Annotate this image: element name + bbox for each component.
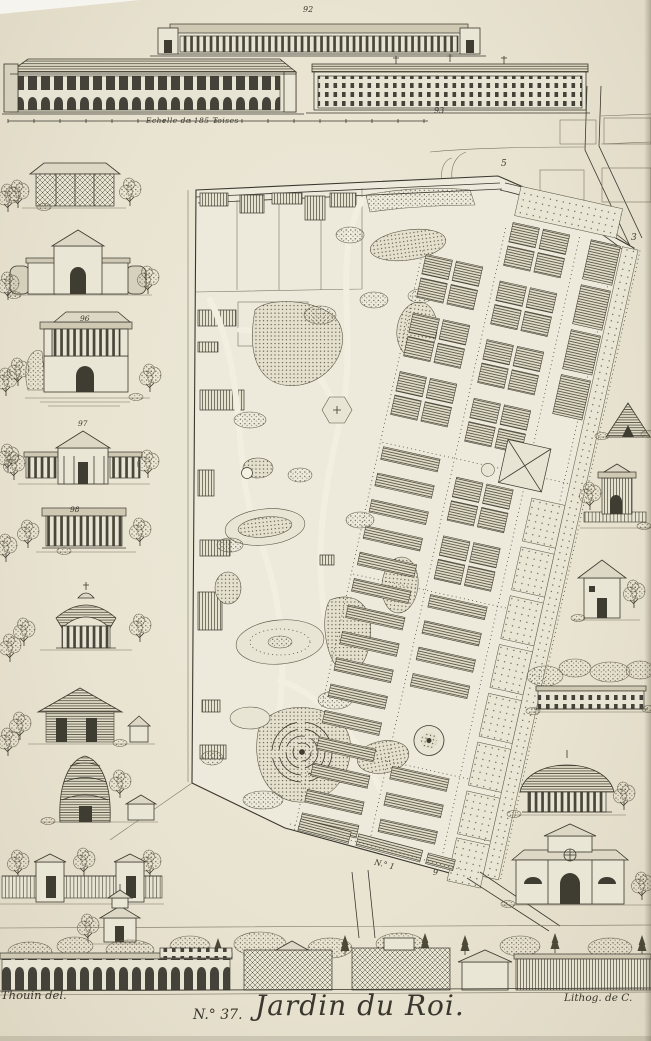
scan-edge-highlight — [0, 0, 140, 14]
figure-label-colonnade: 98 — [70, 506, 80, 514]
vignette-open-colonnade — [18, 508, 152, 555]
elevation-long-building — [306, 54, 590, 113]
plate-number: N.° 37. — [193, 1008, 243, 1022]
engraved-plate: Echelle de 185 Toises 92 93 96 97 98 5 3… — [0, 0, 651, 1041]
figure-label-temple: 97 — [78, 420, 88, 428]
figure-label-belvedere: 96 — [80, 315, 90, 323]
credit-right: Lithog. de C. — [564, 993, 632, 1004]
vignette-pedimented-temple — [4, 431, 160, 484]
vignette-country-house — [501, 824, 651, 908]
figure-label-top-gallery: 92 — [303, 6, 313, 14]
vignette-trellis-pavilion — [8, 163, 142, 211]
credit-left: Thouin del. — [1, 990, 67, 1002]
vignette-round-kiosk — [14, 582, 152, 650]
vignette-gate-fence — [0, 848, 164, 904]
paper-edge-shadow-bottom — [0, 1036, 651, 1041]
vignette-winged-pavilion — [7, 230, 159, 299]
scale-label: Echelle de 185 Toises — [146, 117, 239, 125]
plan-label-east-corner: 3 — [631, 234, 637, 243]
plate-title: Jardin du Roi. — [255, 992, 465, 1020]
vignette-square-hut — [571, 560, 645, 622]
engraving-canvas — [0, 0, 651, 1041]
vignette-pyramid-lodge — [595, 403, 651, 440]
paper-edge-shadow-right — [644, 0, 651, 1041]
figure-label-long-building: 93 — [434, 107, 444, 115]
vignette-orangery — [526, 659, 651, 715]
plan-label-north-road: 5 — [501, 160, 507, 169]
diagonal-parterre-square — [498, 439, 550, 491]
elevation-gallery-colonnade — [150, 24, 486, 56]
plan-label-south-gate: 9 — [433, 869, 438, 877]
vignette-rustic-kiosk — [580, 464, 651, 530]
bottom-elevation-strip — [0, 932, 651, 995]
vignette-beehive-icehouse — [40, 756, 158, 825]
vignette-log-cabin — [10, 688, 156, 747]
elevation-arched-greenhouse — [2, 59, 304, 114]
vignette-round-pavilion — [507, 750, 635, 818]
vignette-belvedere-grotto — [8, 312, 162, 406]
